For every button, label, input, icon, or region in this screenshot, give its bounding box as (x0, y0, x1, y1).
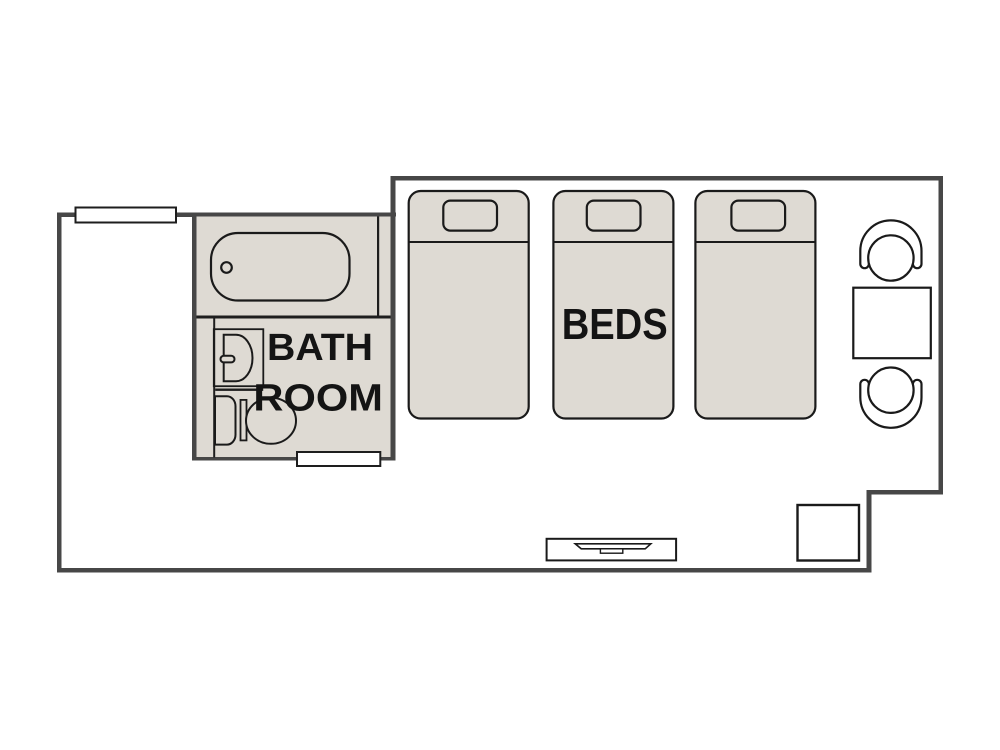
svg-text:ROOM: ROOM (253, 377, 383, 419)
svg-text:BEDS: BEDS (562, 300, 668, 349)
svg-text:BATH: BATH (267, 327, 373, 369)
